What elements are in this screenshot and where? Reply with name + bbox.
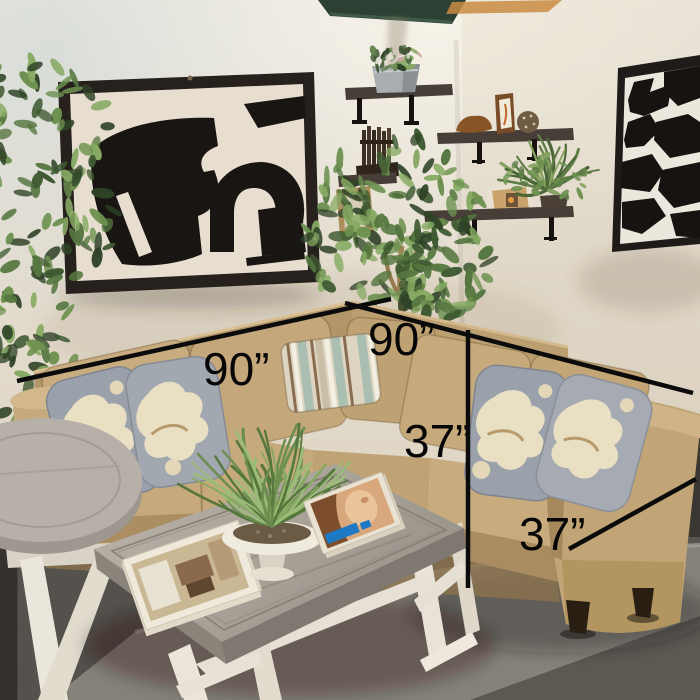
mini-frame [495,93,515,134]
woven-sphere [517,111,539,133]
dimension-label-depth: 37” [519,511,585,557]
warm-light [446,0,562,14]
hanging-nail [188,76,193,81]
dimension-label-width-left: 90” [203,346,269,392]
dimension-label-width-right: 90” [368,316,434,362]
dimension-label-height: 37” [404,418,470,464]
living-room-photo: 90” 90” 37” 37” [0,0,700,700]
abstract-artwork-right [612,55,700,252]
scene-art [0,0,700,700]
candle-glow [508,197,514,203]
